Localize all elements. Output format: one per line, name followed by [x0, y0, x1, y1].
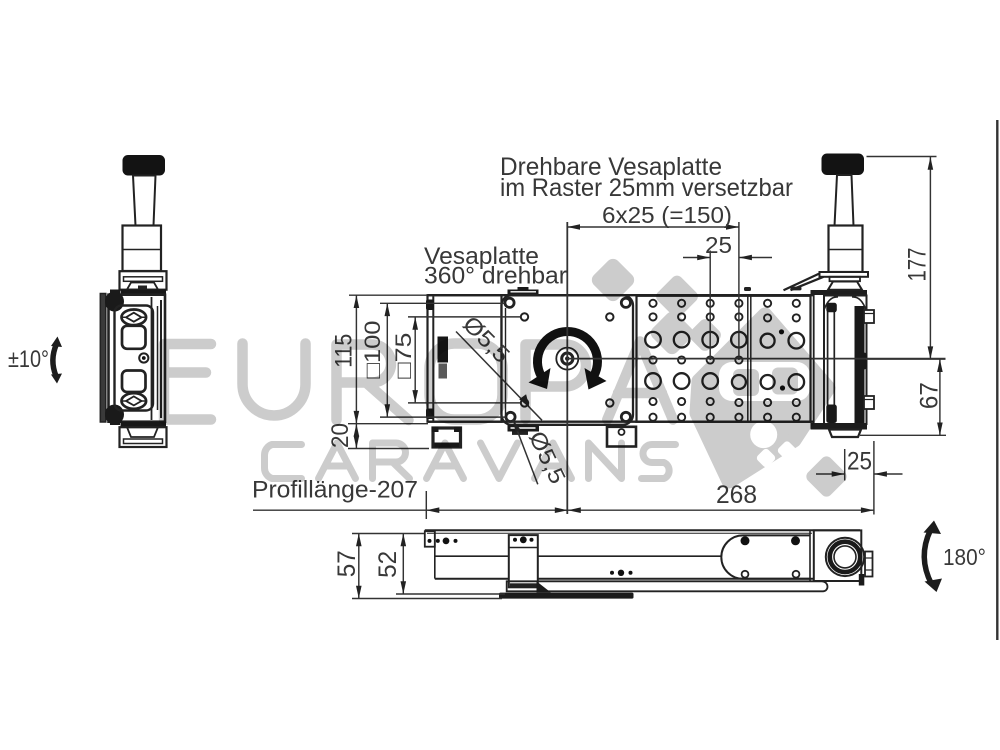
svg-text:360° drehbar: 360° drehbar: [424, 263, 567, 290]
svg-text:25: 25: [705, 232, 732, 258]
svg-text:52: 52: [374, 551, 402, 578]
svg-text:177: 177: [904, 248, 932, 282]
svg-text:im Raster 25mm versetzbar: im Raster 25mm versetzbar: [500, 174, 793, 202]
svg-text:268: 268: [716, 481, 757, 509]
svg-text:6x25 (=150): 6x25 (=150): [602, 202, 732, 228]
svg-text:25: 25: [847, 448, 872, 476]
svg-text:±10°: ±10°: [8, 346, 49, 373]
svg-text:67: 67: [916, 382, 944, 409]
svg-text:57: 57: [333, 550, 361, 577]
svg-text:180°: 180°: [943, 544, 986, 570]
